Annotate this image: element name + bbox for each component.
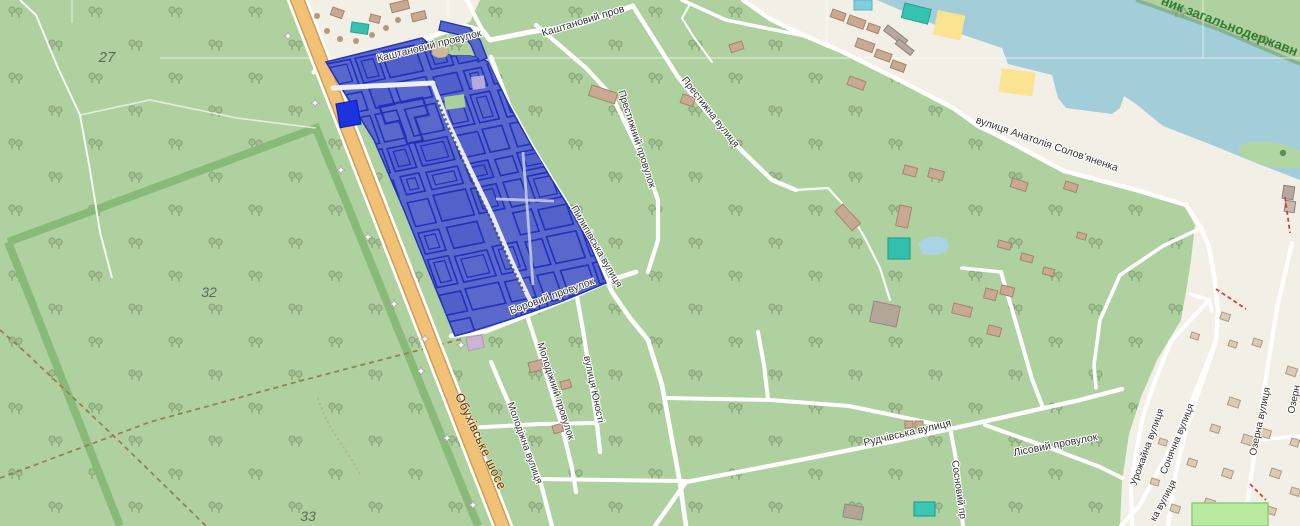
svg-text:33: 33 [300,508,316,524]
svg-text:32: 32 [201,284,217,300]
svg-text:27: 27 [98,49,116,66]
